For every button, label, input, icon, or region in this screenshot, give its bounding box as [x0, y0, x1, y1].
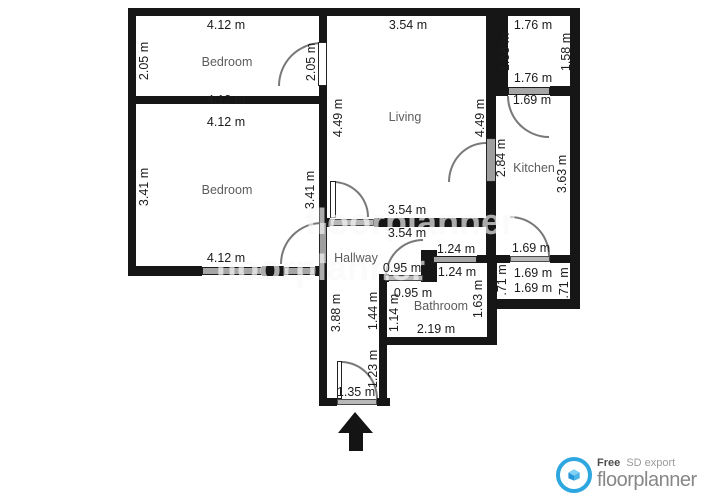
door-leaf — [330, 181, 336, 218]
dimension-label: 1.69 m — [514, 266, 552, 280]
dimension-label: 3.41 m — [303, 171, 317, 209]
window — [433, 256, 477, 263]
dimension-label: 1.58 m — [498, 33, 512, 71]
floorplan-canvas: floorplannerfloorplanner4.12 m2.05 m2.05… — [0, 0, 706, 500]
dimension-label: 1.63 m — [471, 280, 485, 318]
dimension-label: 3.63 m — [555, 155, 569, 193]
dimension-label: 3.41 m — [137, 168, 151, 206]
entrance-arrow-shaft — [349, 430, 363, 451]
dimension-label: 2.05 m — [304, 43, 318, 81]
dimension-label: 1.35 m — [337, 385, 375, 399]
wall — [379, 340, 387, 406]
door-threshold — [385, 275, 423, 281]
wall — [487, 299, 580, 309]
dimension-label: 3.54 m — [389, 18, 427, 32]
dimension-label: 2.05 m — [137, 42, 151, 80]
wall — [128, 266, 202, 276]
dimension-label: 1.44 m — [366, 292, 380, 330]
dimension-label: 4.49 m — [473, 99, 487, 137]
dimension-label: 4.12 m — [207, 93, 245, 107]
wall — [550, 86, 580, 96]
dimension-label: .71 m — [495, 264, 509, 295]
wall — [494, 86, 508, 96]
dimension-label: 1.24 m — [437, 242, 475, 256]
dimension-label: 1.69 m — [513, 93, 551, 107]
door-threshold — [510, 256, 550, 262]
dimension-label: 1.69 m — [512, 241, 550, 255]
dimension-label: 1.58 m — [559, 33, 573, 71]
dimension-label: 4.12 m — [207, 18, 245, 32]
dimension-label: .71 m — [557, 267, 571, 298]
wall — [128, 8, 136, 276]
dimension-label: 3.54 m — [388, 226, 426, 240]
door-arc-kitchen-living — [448, 142, 486, 182]
logo-text: Free SD export floorplanner — [597, 455, 697, 490]
floorplanner-icon — [556, 457, 592, 493]
wall — [128, 8, 580, 16]
wall — [262, 266, 284, 276]
wall — [319, 398, 337, 406]
dimension-label: 3.88 m — [329, 294, 343, 332]
logo-export-label: SD export — [626, 457, 675, 469]
dimension-label: 4.49 m — [331, 99, 345, 137]
dimension-label: 1.76 m — [514, 18, 552, 32]
room-label: Living — [389, 110, 422, 124]
dimension-label: 1.76 m — [514, 71, 552, 85]
dimension-label: 1.69 m — [514, 281, 552, 295]
door-arc-living — [333, 181, 369, 217]
wall — [319, 8, 327, 42]
door-threshold — [337, 399, 377, 405]
floorplanner-logo: Free SD export floorplanner — [556, 455, 697, 493]
dimension-label: 2.19 m — [417, 322, 455, 336]
wall — [379, 337, 497, 345]
dimension-label: 1.14 m — [387, 294, 401, 332]
dimension-label: 4.12 m — [207, 115, 245, 129]
logo-brand-name: floorplanner — [597, 470, 697, 490]
dimension-label: 2.84 m — [494, 139, 508, 177]
door-arc-bedroom2 — [280, 222, 322, 264]
door-threshold — [330, 219, 374, 226]
room-label: Bathroom — [414, 299, 468, 313]
room-label: Bedroom — [202, 55, 253, 69]
dimension-label: 1.23 m — [366, 350, 380, 388]
room-label: Hallway — [334, 251, 378, 265]
dimension-label: 0.95 m — [383, 261, 421, 275]
room-label: Bedroom — [202, 183, 253, 197]
dimension-label: 1.24 m — [438, 265, 476, 279]
logo-free-label: Free — [597, 457, 620, 469]
door-leaf — [319, 222, 327, 264]
wall — [486, 8, 496, 138]
window — [202, 267, 262, 275]
room-label: Kitchen — [513, 161, 555, 175]
wall — [319, 266, 327, 406]
wall — [379, 274, 387, 345]
door-leaf — [318, 42, 327, 86]
wall — [550, 255, 570, 263]
window — [284, 267, 315, 275]
dimension-label: 4.12 m — [207, 251, 245, 265]
dimension-label: 3.54 m — [388, 203, 426, 217]
floorplanner-icon-glyph — [566, 467, 582, 483]
wall — [319, 86, 327, 222]
